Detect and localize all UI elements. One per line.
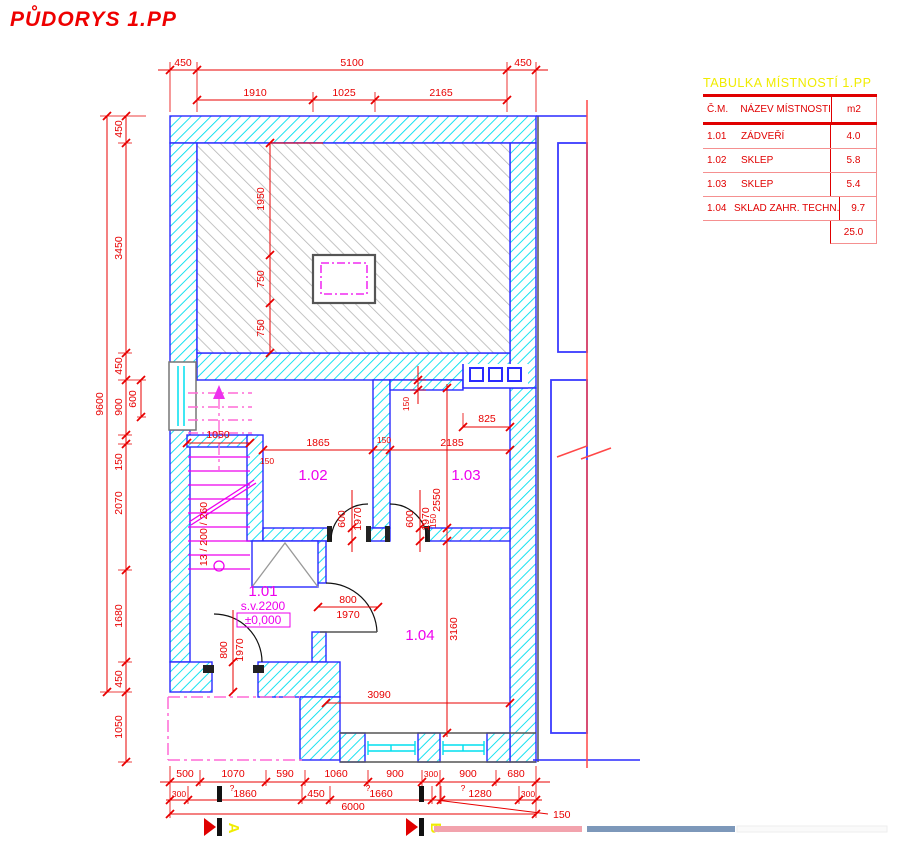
dim-label: 1280 [468,788,492,800]
dim-label: 1865 [306,437,330,449]
scale-bar-pink [434,826,582,832]
room-area: 9.7 [839,197,877,220]
room-num: 1.03 [703,179,741,190]
property-line [557,100,611,768]
room-name: SKLEP [741,155,830,166]
dim-label: 300 [424,769,438,779]
room-num: 1.04 [703,203,734,214]
scale-bar-light [737,826,887,832]
scale-bar-blue [587,826,735,832]
dim-label: 450 [514,57,532,69]
room-area: 5.4 [830,173,877,196]
dim-label: 1050 [206,429,230,441]
room-label-104: 1.04 [405,627,434,644]
dim-label: 1060 [324,768,348,780]
dim-label: 800 [339,594,357,606]
dim-label: 1970 [336,609,360,621]
room-num: 1.02 [703,155,741,166]
dim-label: 1860 [233,788,257,800]
dim-label: 2165 [429,87,453,99]
dim-label: 450 [307,788,325,800]
dim-label: 150 [260,456,274,466]
stair-spec-label: 13 / 200 / 260 [198,502,210,566]
table-row: 1.04 SKLAD ZAHR. TECHN. 9.7 [703,197,877,221]
dim-label: 900 [113,398,125,416]
section-letter-a: A [225,823,242,834]
window-square [489,368,502,381]
dim-label: 1680 [113,604,125,628]
dim-label: 1025 [332,87,356,99]
room-label-102: 1.02 [298,467,327,484]
room-area: 5.8 [830,149,877,172]
dim-label: ? [366,783,371,793]
dim-label: 1070 [221,768,245,780]
section-arrow-b [406,818,418,836]
dim-label: 450 [113,357,125,375]
dim-label: 600 [127,390,139,408]
section-arrow-a [204,818,216,836]
dim-label: ? [461,783,466,793]
dim-label: 825 [478,413,496,425]
room-name: SKLEP [741,179,830,190]
dim-label: 300 [521,789,535,799]
dim-label: 600 [336,510,348,528]
dim-label: 1970 [352,507,364,531]
dim-label: 450 [113,670,125,688]
dim-label: 450 [113,120,125,138]
stair-direction-arrow [213,385,225,399]
dim-label: 1950 [255,187,267,211]
staircase: 13 / 200 / 260 [188,385,256,571]
dim-label: 3090 [367,689,391,701]
dim-label: 1910 [243,87,267,99]
top-right-notch [463,364,528,388]
stair-door [252,541,318,587]
room-area: 4.0 [830,125,877,148]
dim-label: 2070 [113,491,125,515]
room-name: ZÁDVEŘÍ [741,131,830,142]
dim-label: 800 [218,641,230,659]
window-square [470,368,483,381]
neighbor-outline-upper [558,143,587,352]
dim-label: 680 [507,768,525,780]
dim-label: 450 [174,57,192,69]
table-row: 1.02 SKLEP 5.8 [703,149,877,173]
room-height-101: s.v.2200 [241,599,286,613]
chimney [313,255,375,303]
dim-label: 150 [377,435,391,445]
dim-label: 150 [113,453,125,471]
dim-label: 5100 [340,57,364,69]
dim-label: 600 [404,510,416,528]
porch-outline [168,697,302,760]
dim-label: 6000 [341,801,365,813]
dim-label: 500 [176,768,194,780]
window-square [508,368,521,381]
dim-label: 150 [401,397,411,411]
dim-label: 590 [276,768,294,780]
dim-label: 750 [255,270,267,288]
dim-label: 9600 [94,392,106,416]
room-label-101: 1.01 [248,583,277,600]
dim-label: 1970 [234,638,246,662]
room-num: 1.01 [703,131,741,142]
dim-label: 150 [553,809,571,821]
table-header-row: Č.M. NÁZEV MÍSTNOSTI m2 [703,97,877,125]
dim-label: 1970 [420,507,432,531]
dim-label: 2185 [440,437,464,449]
drawing-sheet: PŮDORYS 1.PP [0,0,899,850]
dim-label: ? [230,783,235,793]
table-row: 1.01 ZÁDVEŘÍ 4.0 [703,125,877,149]
dim-label: 1050 [113,715,125,739]
room-level-101: ±0,000 [245,613,282,627]
col-header-name: NÁZEV MÍSTNOSTI [740,104,831,115]
scale-bars [434,826,887,832]
dim-label: 750 [255,319,267,337]
site-lines [533,100,640,768]
table-row: 1.03 SKLEP 5.4 [703,173,877,197]
room-table-title: TABULKA MÍSTNOSTÍ 1.PP [703,76,877,90]
dim-label: 3450 [113,236,125,260]
room-table: TABULKA MÍSTNOSTÍ 1.PP Č.M. NÁZEV MÍSTNO… [703,76,877,244]
neighbor-outline-lower [551,380,587,733]
table-total-row: 25.0 [703,221,877,244]
dim-label: 1660 [369,788,393,800]
room-name: SKLAD ZAHR. TECHN. [734,203,839,214]
dim-label: 900 [386,768,404,780]
total-area: 25.0 [830,221,877,244]
dim-label: 3160 [448,617,460,641]
col-header-area: m2 [831,97,877,122]
room-label-103: 1.03 [451,467,480,484]
dim-label: 300 [172,789,186,799]
dim-label: 900 [459,768,477,780]
col-header-num: Č.M. [703,104,740,115]
dim-label: 2550 [431,488,443,512]
